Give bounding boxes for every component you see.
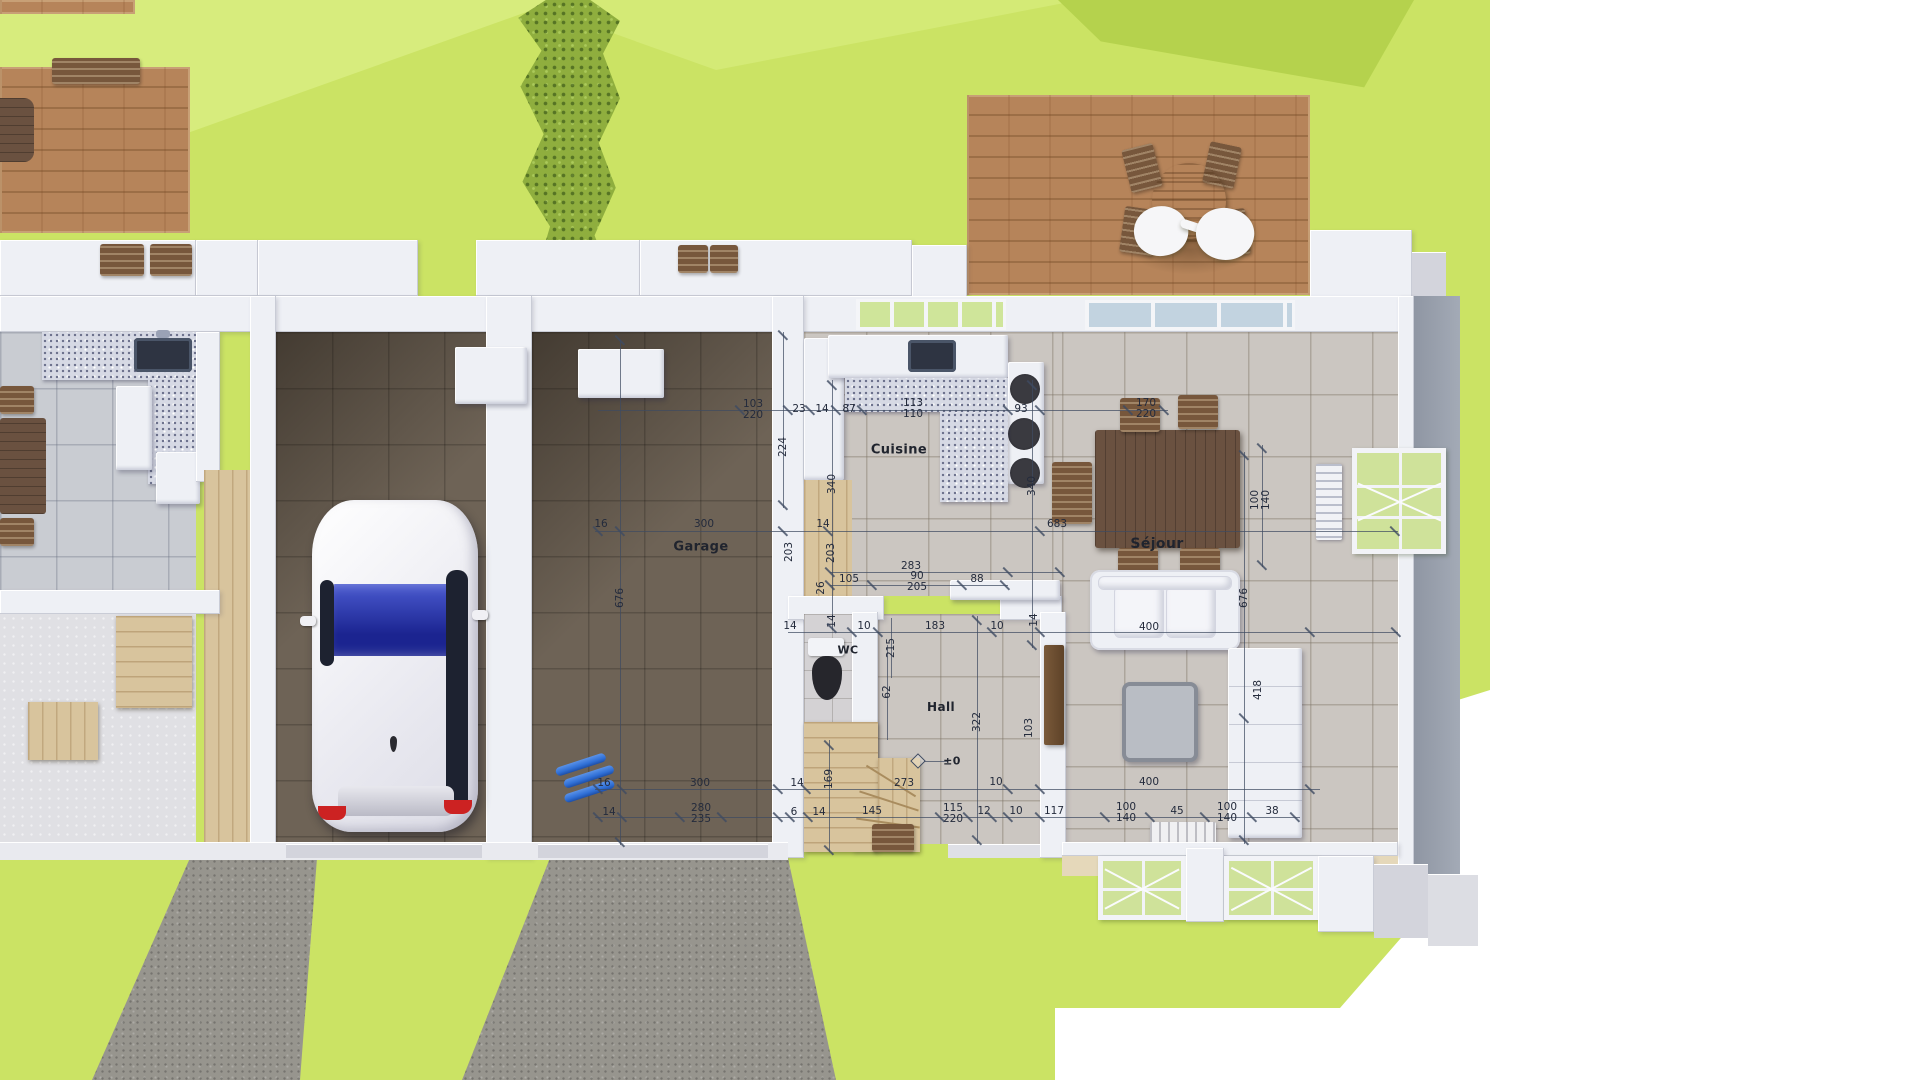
dim-tick xyxy=(1003,784,1013,794)
floorplan-render: GarageCuisineSéjourHallWC±01032202314871… xyxy=(0,0,1920,1080)
dim-tick xyxy=(778,526,788,536)
dim-tick xyxy=(1239,450,1249,460)
dimension-label: 14 xyxy=(783,621,796,632)
dimension-label: 26 xyxy=(816,581,827,594)
dim-tick xyxy=(1035,784,1045,794)
dim-tick xyxy=(972,835,982,845)
dimension-label: 88 xyxy=(970,574,983,585)
dimension-label: 62 xyxy=(882,685,893,698)
room-label-hall: Hall xyxy=(927,700,955,714)
dimension-label: 87 xyxy=(842,404,855,415)
dimension-label: 220 xyxy=(943,814,963,825)
dim-tick xyxy=(1239,835,1249,845)
dimension-label: 300 xyxy=(694,519,714,530)
dim-tick xyxy=(615,837,625,847)
dimension-label: 10 xyxy=(989,777,1002,788)
dim-tick xyxy=(972,615,982,625)
dimension-label: 93 xyxy=(1014,404,1027,415)
dim-tick xyxy=(1305,627,1315,637)
dimension-label: 38 xyxy=(1265,806,1278,817)
dim-tick xyxy=(1390,526,1400,536)
dimension-label: 203 xyxy=(826,543,837,563)
dimension-label: 140 xyxy=(1261,490,1272,510)
dim-tick xyxy=(867,580,877,590)
dim-tick xyxy=(1305,784,1315,794)
dim-tick xyxy=(617,784,627,794)
dim-tick xyxy=(801,784,811,794)
dim-tick xyxy=(778,330,788,340)
dim-tick xyxy=(825,567,835,577)
dim-tick xyxy=(615,335,625,345)
dimension-label: 103 xyxy=(743,399,763,410)
dimension-label: 103 xyxy=(1024,718,1035,738)
dimension-label: 145 xyxy=(862,806,882,817)
dim-tick xyxy=(857,405,867,415)
room-label-garage: Garage xyxy=(673,540,728,555)
dim-tick xyxy=(987,812,997,822)
dimension-label: 203 xyxy=(784,542,795,562)
dim-tick xyxy=(1027,380,1037,390)
dimension-label: 676 xyxy=(1239,588,1250,608)
dimension-label: 322 xyxy=(972,712,983,732)
dimension-label: 110 xyxy=(903,409,923,420)
dimension-label: 220 xyxy=(1136,409,1156,420)
dimension-label: 16 xyxy=(597,778,610,789)
dimension-label: 169 xyxy=(824,769,835,789)
dimension-label: 205 xyxy=(907,582,927,593)
dimension-label: 115 xyxy=(943,803,963,814)
dimension-label: 117 xyxy=(1044,806,1064,817)
dimension-label: 6 xyxy=(791,807,798,818)
dim-tick xyxy=(1200,812,1210,822)
dimension-label: 140 xyxy=(1116,813,1136,824)
dimension-label: 14 xyxy=(602,807,615,818)
dimension-label: 100 xyxy=(1217,802,1237,813)
dimension-label: 400 xyxy=(1139,777,1159,788)
dimension-label: 300 xyxy=(690,778,710,789)
dim-tick xyxy=(1035,526,1045,536)
dimension-label: 683 xyxy=(1047,519,1067,530)
dim-tick xyxy=(1123,405,1133,415)
dim-tick xyxy=(615,526,625,536)
dim-tick xyxy=(675,812,685,822)
dimension-label: 10 xyxy=(1009,806,1022,817)
dim-tick xyxy=(1027,640,1037,650)
dimension-label: 340 xyxy=(1027,476,1038,496)
dimension-label: 676 xyxy=(615,588,626,608)
dimension-label: 220 xyxy=(743,410,763,421)
dim-tick xyxy=(1000,580,1010,590)
dim-tick xyxy=(831,405,841,415)
dim-tick xyxy=(1257,560,1267,570)
dimension-label: 140 xyxy=(1217,813,1237,824)
dim-tick xyxy=(824,845,834,855)
dimension-label: 14 xyxy=(815,404,828,415)
dimension-label: 273 xyxy=(894,778,914,789)
dimension-label: 280 xyxy=(691,803,711,814)
dim-tick xyxy=(957,580,967,590)
dim-tick xyxy=(773,784,783,794)
dimension-label: 113 xyxy=(903,398,923,409)
dim-tick xyxy=(1145,812,1155,822)
dimension-label: 183 xyxy=(925,621,945,632)
dimension-label: 90 xyxy=(910,571,923,582)
dim-tick xyxy=(1003,567,1013,577)
dimension-label: 235 xyxy=(691,814,711,825)
dimension-label: 100 xyxy=(1116,802,1136,813)
dim-tick xyxy=(717,812,727,822)
dim-tick xyxy=(617,812,627,822)
dimension-label: 340 xyxy=(827,474,838,494)
dimension-label: 215 xyxy=(886,638,897,658)
room-label-wc: WC xyxy=(837,644,858,657)
dim-tick xyxy=(1003,405,1013,415)
dimension-label: 224 xyxy=(778,437,789,457)
dim-tick xyxy=(1035,405,1045,415)
dimension-label: 14 xyxy=(1029,613,1040,626)
dim-tick xyxy=(1055,567,1065,577)
dimension-label: 418 xyxy=(1253,680,1264,700)
dim-tick xyxy=(1159,405,1169,415)
dim-tick xyxy=(824,740,834,750)
dim-tick xyxy=(1391,627,1401,637)
dim-tick xyxy=(1035,627,1045,637)
dim-tick xyxy=(1239,713,1249,723)
dimension-label: 45 xyxy=(1170,806,1183,817)
dimension-label: 100 xyxy=(1250,490,1261,510)
dim-tick xyxy=(778,500,788,510)
room-label-cuisine: Cuisine xyxy=(871,443,927,458)
dimension-label: 10 xyxy=(857,621,870,632)
annotations-layer: GarageCuisineSéjourHallWC±01032202314871… xyxy=(0,0,1920,1080)
dim-tick xyxy=(873,627,883,637)
dim-tick xyxy=(963,812,973,822)
dimension-label: 105 xyxy=(839,574,859,585)
dimension-label: 14 xyxy=(812,807,825,818)
dim-tick xyxy=(773,812,783,822)
room-label--0: ±0 xyxy=(943,755,961,768)
dimension-label: 10 xyxy=(990,621,1003,632)
dim-tick xyxy=(847,627,857,637)
dim-tick xyxy=(1290,812,1300,822)
dim-tick xyxy=(1247,812,1257,822)
dim-tick xyxy=(1257,443,1267,453)
dimension-label: 170 xyxy=(1136,398,1156,409)
dim-tick xyxy=(805,405,815,415)
dim-tick xyxy=(827,380,837,390)
dim-tick xyxy=(1100,812,1110,822)
dimension-label: 400 xyxy=(1139,622,1159,633)
room-label-s-jour: Séjour xyxy=(1130,536,1183,552)
